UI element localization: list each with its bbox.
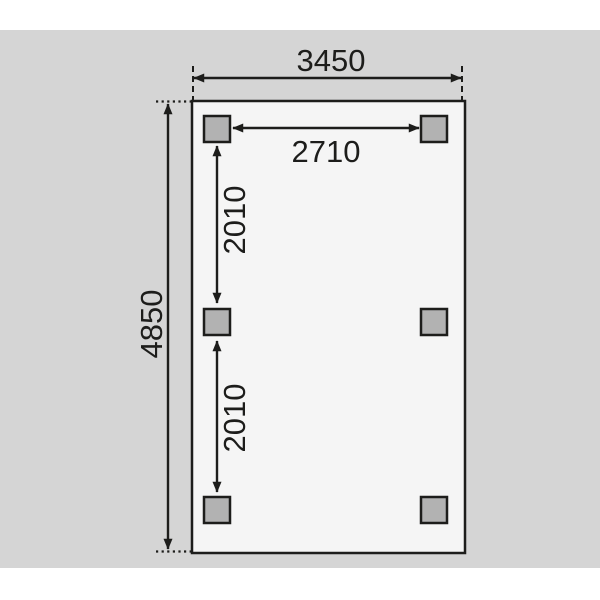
post-middle-left [204,309,230,335]
dimension-label-overall-width: 3450 [297,43,366,78]
dimension-label-post-span-width: 2710 [292,134,361,169]
dimension-label-overall-depth: 4850 [134,290,169,359]
screenshot-canvas: 3450 4850 2710 2010 2010 [0,0,600,600]
post-bottom-left [204,497,230,523]
post-top-right [421,116,447,142]
dimension-label-post-span-depth-lower: 2010 [217,384,252,453]
dimension-label-post-span-depth-upper: 2010 [217,186,252,255]
post-middle-right [421,309,447,335]
post-bottom-right [421,497,447,523]
dimension-plan-drawing: 3450 4850 2710 2010 2010 [0,0,600,600]
post-top-left [204,116,230,142]
